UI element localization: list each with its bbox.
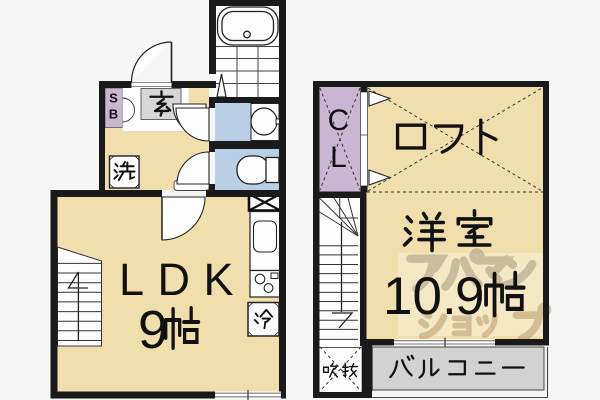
svg-text:LDK: LDK (119, 254, 247, 305)
svg-text:B: B (109, 107, 118, 122)
svg-text:C: C (328, 104, 350, 137)
svg-text:S: S (109, 91, 118, 106)
svg-text:9: 9 (138, 300, 168, 360)
svg-text:L: L (330, 141, 347, 174)
svg-text:10.: 10. (383, 267, 457, 326)
svg-text:9: 9 (455, 267, 484, 326)
